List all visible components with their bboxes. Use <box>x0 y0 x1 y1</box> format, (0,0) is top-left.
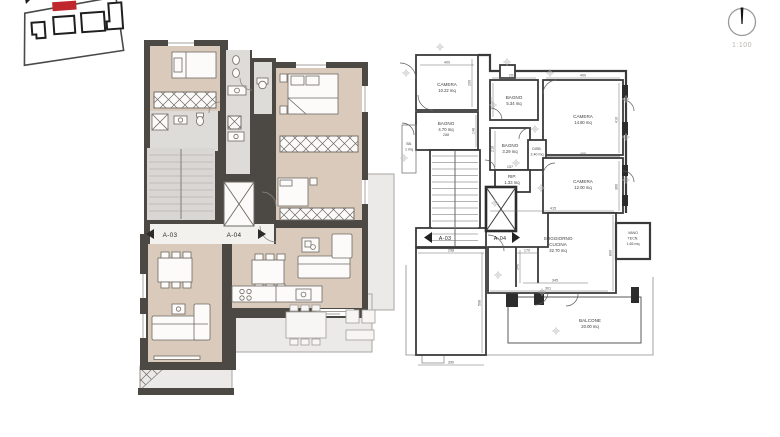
room-label: CUCINA <box>549 242 568 247</box>
north-arrow: 1:100 <box>714 2 774 56</box>
dim: 508 <box>478 300 482 306</box>
unit-label-a04: A-04 <box>227 232 242 239</box>
washing-machine <box>228 116 241 129</box>
dim: 157 <box>507 165 513 169</box>
dim: 200 <box>468 80 472 86</box>
room-area: 5.34 mq <box>506 101 522 106</box>
furnished-plan: A-03 A-04 <box>130 28 400 398</box>
dim: 200 <box>489 97 493 103</box>
dim: 360 <box>615 184 619 190</box>
unit-label-a03: A-03 <box>163 232 178 239</box>
dim: 345 <box>552 279 558 283</box>
dim: 170 <box>524 249 530 253</box>
room-label: BAGNO <box>438 121 455 126</box>
dim: 340 <box>516 264 520 270</box>
room-vano-tecnico <box>616 223 650 259</box>
tv-bench <box>154 356 200 360</box>
toilet <box>233 56 240 65</box>
sink <box>228 86 246 95</box>
room-label: BAGNO <box>502 143 519 148</box>
room-area: 1.65 mq <box>627 242 640 246</box>
dining-table <box>252 254 285 290</box>
room-area: 1.33 mq <box>504 180 520 185</box>
room-area: 14.80 mq <box>574 120 592 125</box>
sink <box>174 116 187 124</box>
dim: 800 <box>609 250 613 256</box>
dim: 267 <box>509 74 515 78</box>
room-area: 1 mq <box>405 148 413 152</box>
room-area: 12.00 mq <box>574 185 592 190</box>
unit-label-a03: A-03 <box>439 236 452 242</box>
room-label: CAMERA <box>437 82 458 87</box>
building-3 <box>81 12 105 33</box>
room-label: VANO <box>628 231 638 235</box>
elevator <box>486 187 516 231</box>
room-area: 32.70 mq <box>549 248 567 253</box>
toilet <box>197 113 204 126</box>
dim: 400 <box>580 152 586 156</box>
balcony-outline <box>506 287 641 343</box>
dim: 410 <box>615 117 619 123</box>
dim: 390 <box>448 361 454 365</box>
room-label: DISB. <box>532 147 541 151</box>
room-area: 3.29 mq <box>502 149 518 154</box>
dim: 400 <box>444 61 450 65</box>
site-key-plan <box>16 0 136 76</box>
dim: 301 <box>545 287 551 291</box>
room-label: TECN. <box>628 237 639 241</box>
building-2 <box>53 16 75 34</box>
coffee-table <box>302 238 319 252</box>
elevator <box>224 182 254 226</box>
bidet <box>233 69 240 78</box>
side-table <box>172 304 185 314</box>
room-label: BALCONE <box>579 318 601 323</box>
bed-single-tl <box>172 52 216 78</box>
site-key-group <box>20 0 125 65</box>
wardrobe <box>154 92 216 108</box>
scale-label: 1:100 <box>732 42 752 49</box>
floor-plan-sheet: 1:100 <box>0 0 780 437</box>
room-label: BAGNO <box>506 95 523 100</box>
kitchen-counter <box>232 286 322 302</box>
highlighted-unit-marker <box>52 1 77 12</box>
room-area: 20.00 mq <box>581 324 599 329</box>
sink <box>228 132 244 141</box>
pointer-arrow-icon <box>24 0 35 4</box>
room-label: CAMERA <box>573 114 594 119</box>
room-label: SOGGIORNO <box>544 236 573 241</box>
wardrobe <box>280 208 354 220</box>
room-area: 10.22 mq <box>438 88 456 93</box>
shower <box>152 114 168 130</box>
dim: 210 <box>491 146 495 152</box>
room-label: SB. <box>406 142 412 146</box>
bath-center-floor <box>226 50 250 174</box>
dim: 288 <box>443 133 449 137</box>
room-area: 4.70 mq <box>438 127 454 132</box>
dim: 400 <box>580 74 586 78</box>
technical-plan: 400 200 267 200 400 410 148 288 210 157 … <box>398 25 673 405</box>
unit-label-a04: A-04 <box>494 236 507 242</box>
wardrobe <box>280 136 358 152</box>
north-needle-icon <box>741 8 744 25</box>
dining-table <box>158 252 192 288</box>
room-bagno1 <box>490 80 538 120</box>
unit-direction-marker-right <box>512 232 520 243</box>
room-area: 2.40 mq <box>531 153 544 157</box>
dim: 298 <box>448 249 454 253</box>
room-bottom-left <box>416 248 486 355</box>
dim: 148 <box>472 128 476 134</box>
bed-double <box>280 74 338 114</box>
room-label: CAMERA <box>573 179 594 184</box>
room-label: RIP. <box>508 174 516 179</box>
dim: 415 <box>550 207 556 211</box>
